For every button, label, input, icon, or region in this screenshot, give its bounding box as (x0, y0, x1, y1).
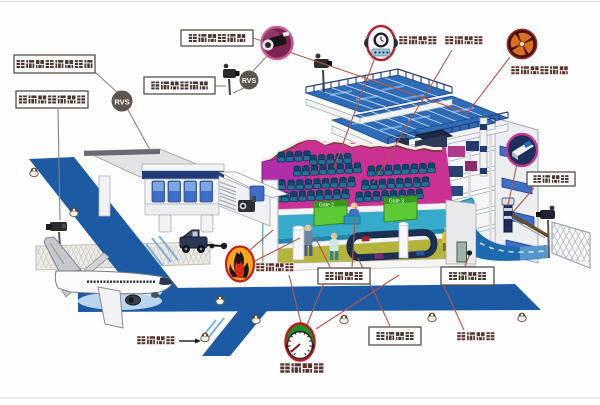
svg-text:Gate 2: Gate 2 (319, 203, 334, 209)
svg-text:RVS: RVS (242, 78, 257, 85)
svg-text:Gate 3: Gate 3 (389, 199, 404, 205)
svg-text:RVS: RVS (114, 98, 129, 107)
